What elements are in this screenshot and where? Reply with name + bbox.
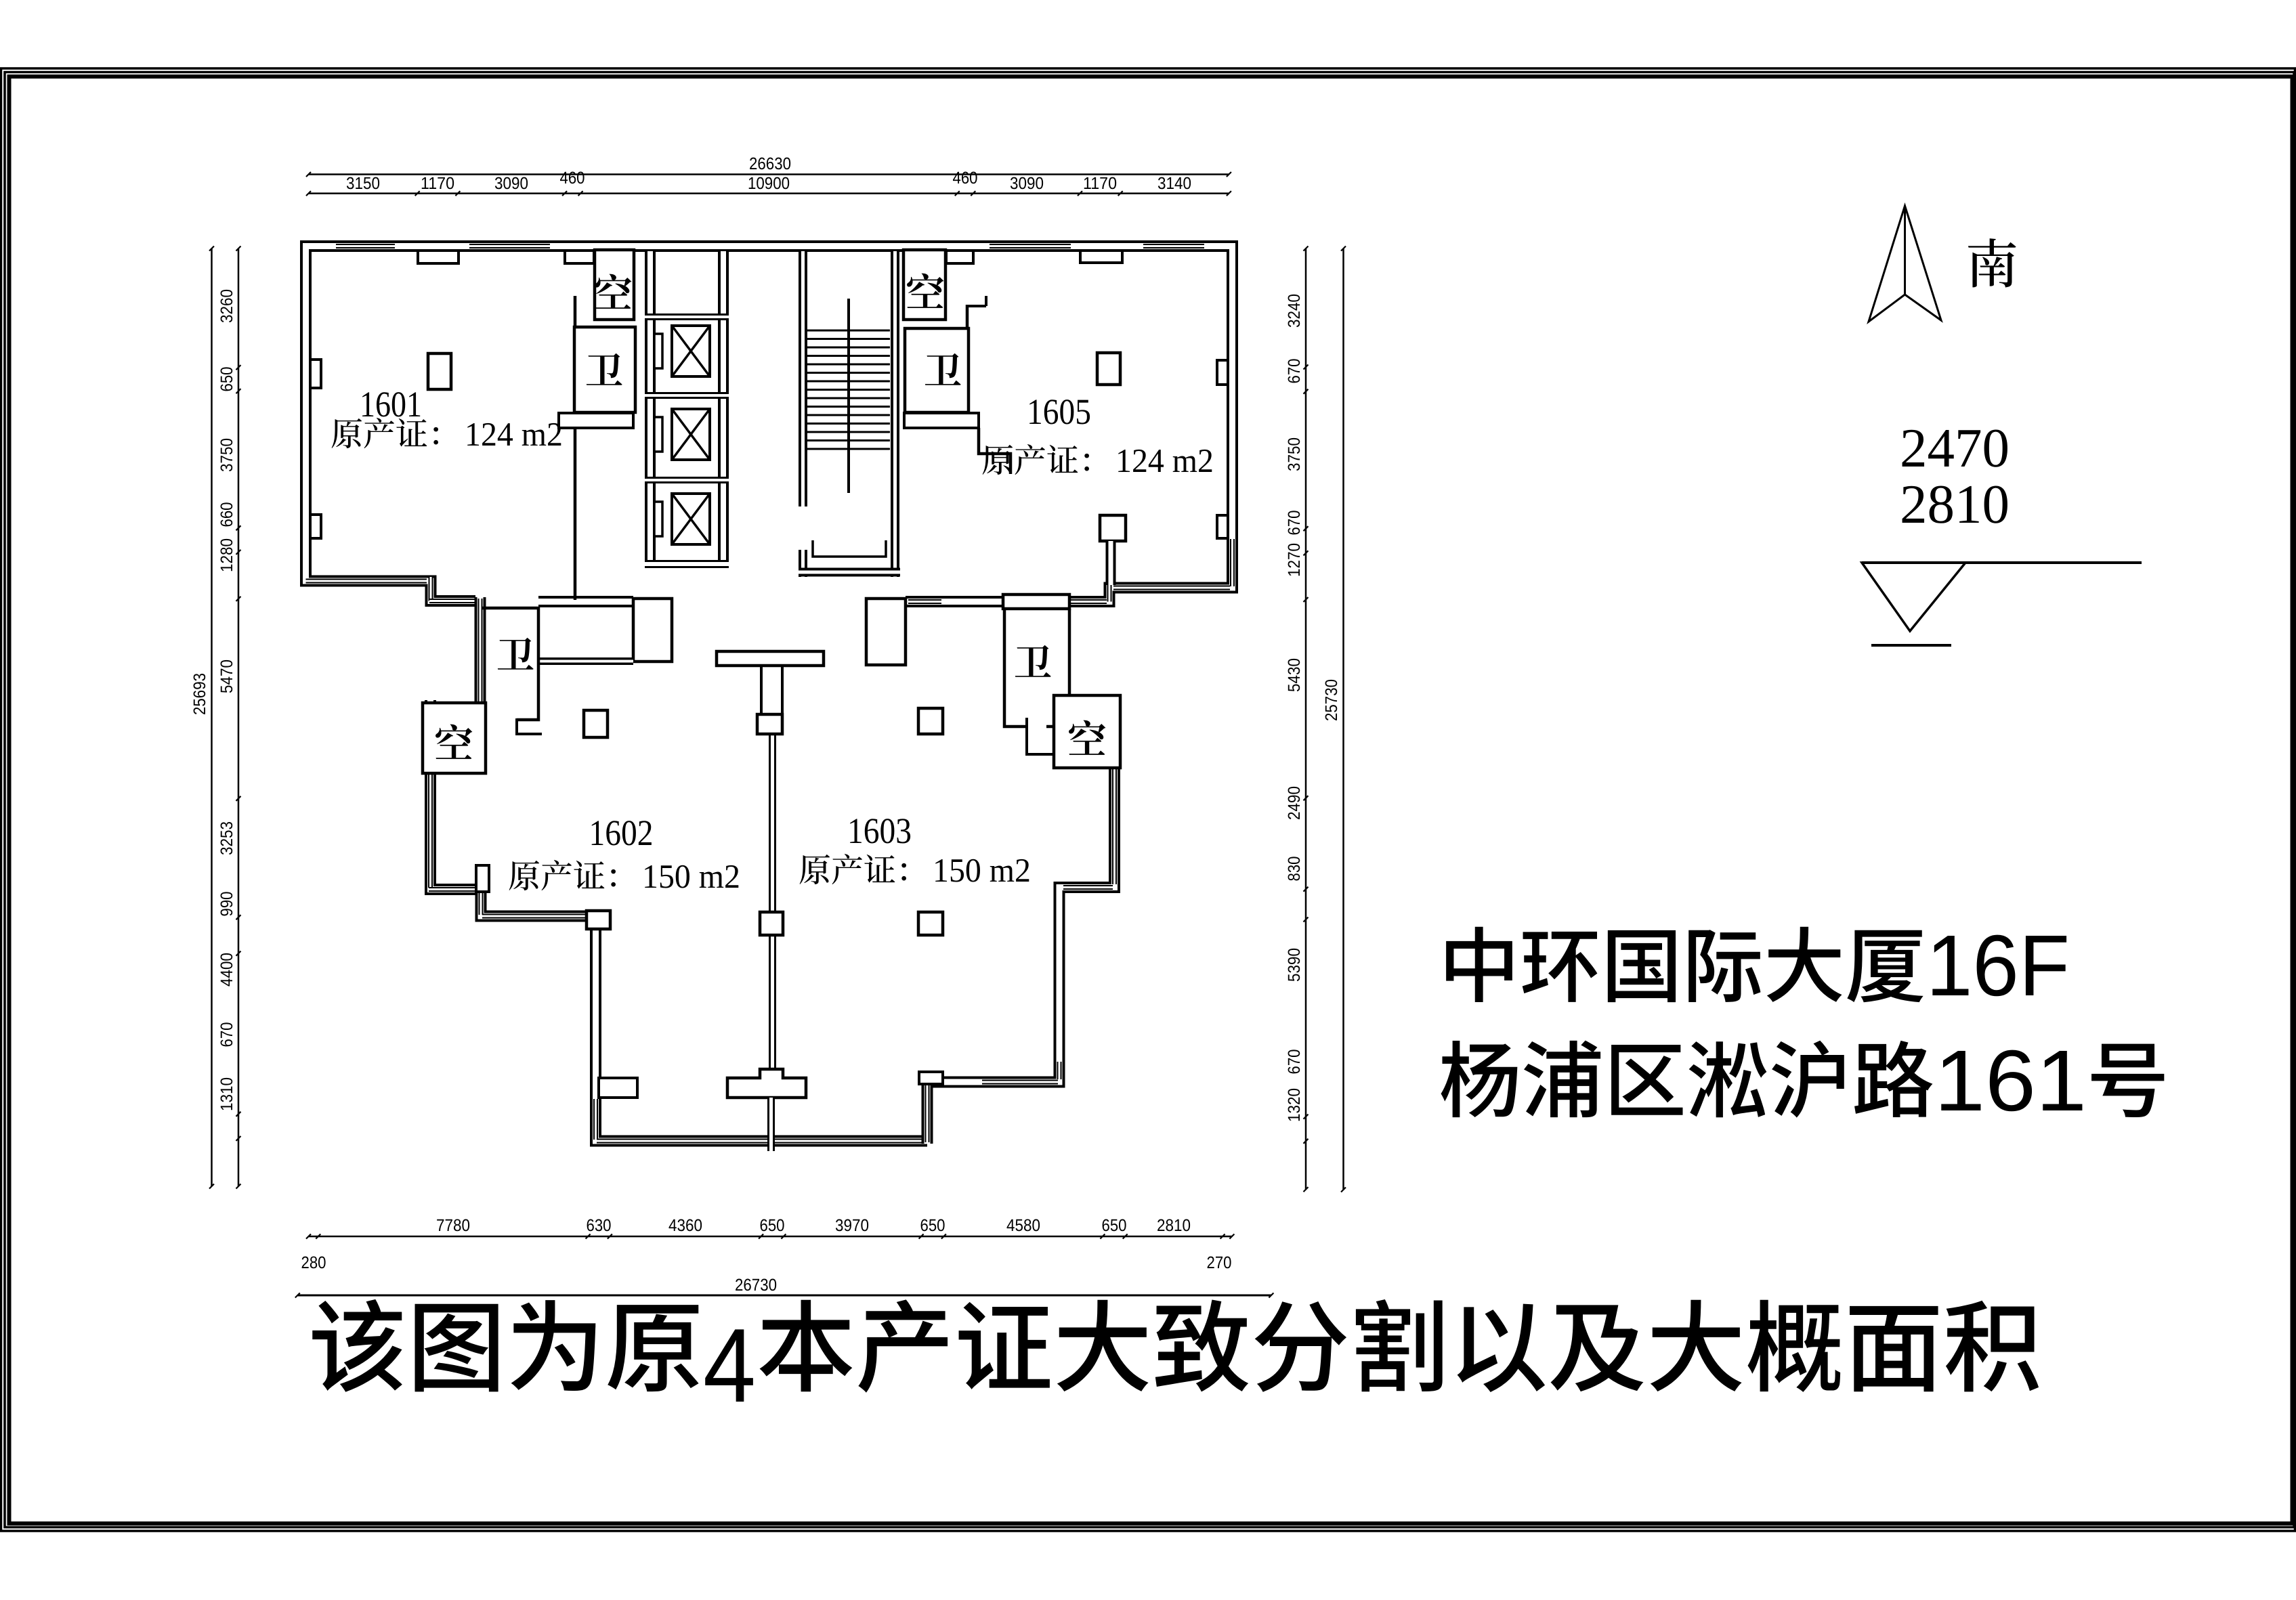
svg-text:124 m2: 124 m2: [465, 415, 563, 453]
svg-text:280: 280: [301, 1253, 326, 1272]
svg-text:1602: 1602: [589, 813, 654, 853]
svg-text:25730: 25730: [1322, 679, 1341, 721]
svg-text:4400: 4400: [217, 953, 236, 987]
svg-text:3750: 3750: [217, 438, 236, 472]
svg-text:4360: 4360: [668, 1216, 702, 1235]
svg-text:650: 650: [760, 1216, 785, 1235]
svg-text:1170: 1170: [1083, 174, 1117, 193]
svg-text:650: 650: [217, 367, 236, 392]
svg-text:270: 270: [1207, 1253, 1232, 1272]
svg-text:3140: 3140: [1157, 174, 1191, 193]
svg-text:3090: 3090: [494, 174, 528, 193]
svg-text:4: 4: [703, 1307, 756, 1424]
svg-text:660: 660: [217, 502, 236, 527]
svg-text:460: 460: [953, 169, 978, 188]
svg-text:2490: 2490: [1285, 786, 1304, 820]
svg-text:1280: 1280: [217, 538, 236, 572]
svg-text:1605: 1605: [1027, 391, 1091, 432]
svg-text:670: 670: [1285, 359, 1304, 384]
svg-text:4580: 4580: [1006, 1216, 1040, 1235]
svg-text:3260: 3260: [217, 289, 236, 323]
svg-text:1310: 1310: [217, 1077, 236, 1111]
svg-text:1601: 1601: [360, 384, 422, 425]
svg-text:26630: 26630: [749, 154, 791, 173]
svg-text:2810: 2810: [1157, 1216, 1191, 1235]
svg-text:670: 670: [217, 1022, 236, 1047]
svg-text:630: 630: [587, 1216, 612, 1235]
svg-text:990: 990: [217, 892, 236, 917]
svg-text:16F: 16F: [1926, 917, 2070, 1014]
svg-text:3253: 3253: [217, 821, 236, 855]
svg-text:3150: 3150: [346, 174, 380, 193]
svg-text:650: 650: [1102, 1216, 1127, 1235]
svg-text:670: 670: [1285, 511, 1304, 536]
svg-text:124 m2: 124 m2: [1115, 441, 1214, 479]
svg-text:26730: 26730: [735, 1276, 777, 1295]
svg-text:5430: 5430: [1285, 658, 1304, 692]
svg-text:2810: 2810: [1900, 473, 2010, 535]
svg-text:3970: 3970: [835, 1216, 869, 1235]
svg-text:2470: 2470: [1900, 417, 2010, 479]
svg-text:1170: 1170: [421, 174, 454, 193]
svg-text:1603: 1603: [847, 810, 912, 851]
svg-text:3090: 3090: [1010, 174, 1044, 193]
svg-text:5390: 5390: [1285, 948, 1304, 982]
svg-text:161: 161: [1934, 1033, 2087, 1129]
svg-text:25693: 25693: [190, 673, 209, 715]
svg-text:150 m2: 150 m2: [642, 857, 740, 895]
svg-text:830: 830: [1285, 857, 1304, 882]
svg-text:1270: 1270: [1285, 543, 1304, 577]
svg-text:150 m2: 150 m2: [933, 851, 1031, 889]
svg-text:3240: 3240: [1285, 294, 1304, 328]
svg-text:7780: 7780: [436, 1216, 470, 1235]
svg-text:650: 650: [920, 1216, 945, 1235]
svg-text:1320: 1320: [1285, 1088, 1304, 1122]
svg-text:3750: 3750: [1285, 437, 1304, 471]
svg-text:5470: 5470: [217, 660, 236, 693]
svg-text:10900: 10900: [748, 174, 790, 193]
svg-text:670: 670: [1285, 1050, 1304, 1075]
svg-text:460: 460: [560, 169, 585, 188]
